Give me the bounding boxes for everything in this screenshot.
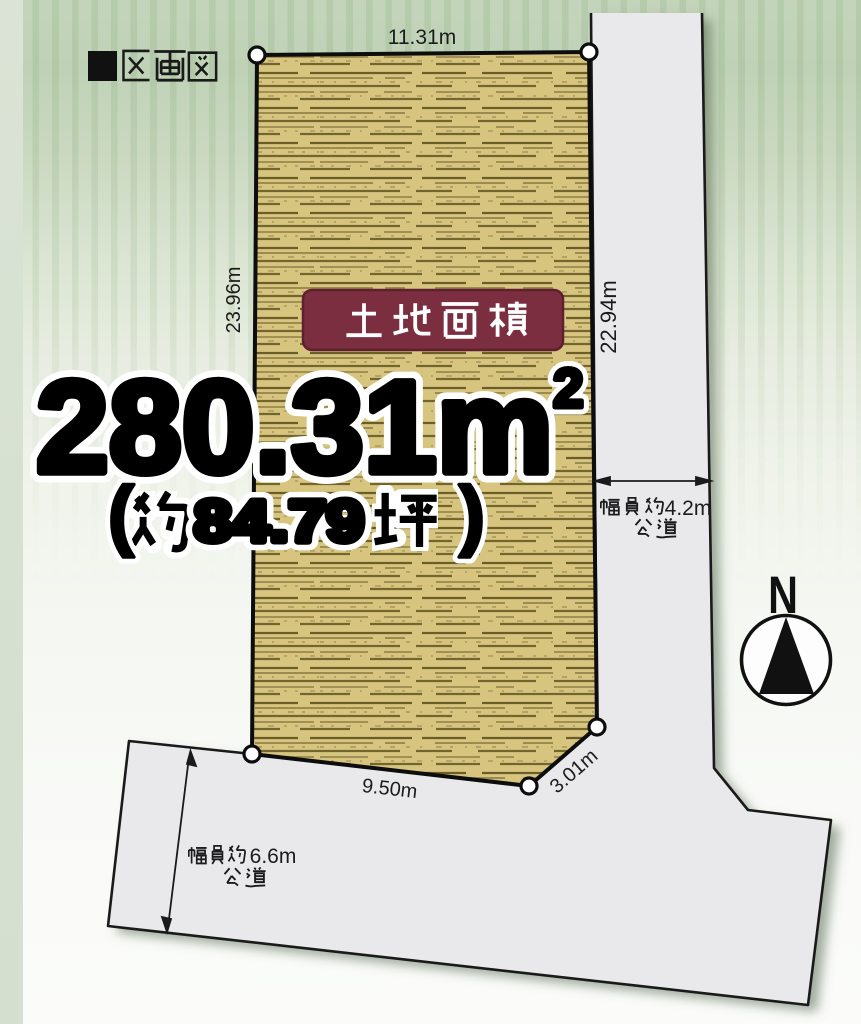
svg-text:23.96m: 23.96m (223, 267, 245, 334)
svg-text:): ) (459, 470, 485, 558)
svg-text:6.6m: 6.6m (250, 845, 297, 868)
svg-text:2: 2 (553, 357, 584, 419)
svg-text:N: N (768, 566, 798, 625)
svg-text:84.79: 84.79 (194, 490, 364, 554)
svg-text:4.2m: 4.2m (665, 497, 712, 520)
svg-text:22.94m: 22.94m (596, 280, 621, 353)
svg-text:(: ( (108, 470, 134, 558)
svg-text:11.31m: 11.31m (388, 26, 457, 49)
